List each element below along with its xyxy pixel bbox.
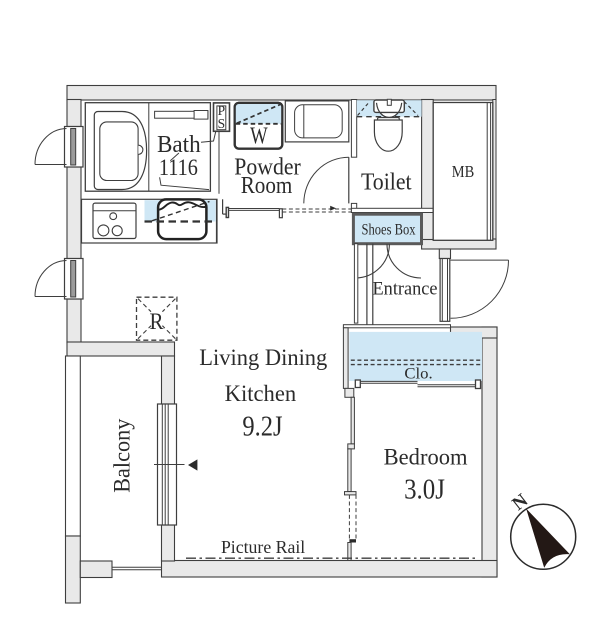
svg-text:R: R xyxy=(150,309,165,334)
svg-text:1116: 1116 xyxy=(159,155,198,180)
svg-text:Entrance: Entrance xyxy=(373,279,438,300)
svg-text:Bath: Bath xyxy=(157,132,201,158)
svg-text:MB: MB xyxy=(452,162,475,181)
svg-text:Clo.: Clo. xyxy=(404,366,432,383)
svg-text:Living Dining: Living Dining xyxy=(199,345,327,371)
svg-text:Kitchen: Kitchen xyxy=(225,381,297,407)
svg-text:Bedroom: Bedroom xyxy=(384,444,468,470)
svg-text:W: W xyxy=(250,124,268,150)
svg-text:Toilet: Toilet xyxy=(361,169,412,195)
svg-text:Picture Rail: Picture Rail xyxy=(221,537,305,557)
svg-text:9.2J: 9.2J xyxy=(242,412,282,443)
svg-text:Balcony: Balcony xyxy=(110,418,136,492)
svg-text:Shoes Box: Shoes Box xyxy=(362,222,416,239)
svg-text:3.0J: 3.0J xyxy=(404,475,445,506)
svg-text:S: S xyxy=(218,116,226,131)
svg-text:Room: Room xyxy=(241,173,293,199)
